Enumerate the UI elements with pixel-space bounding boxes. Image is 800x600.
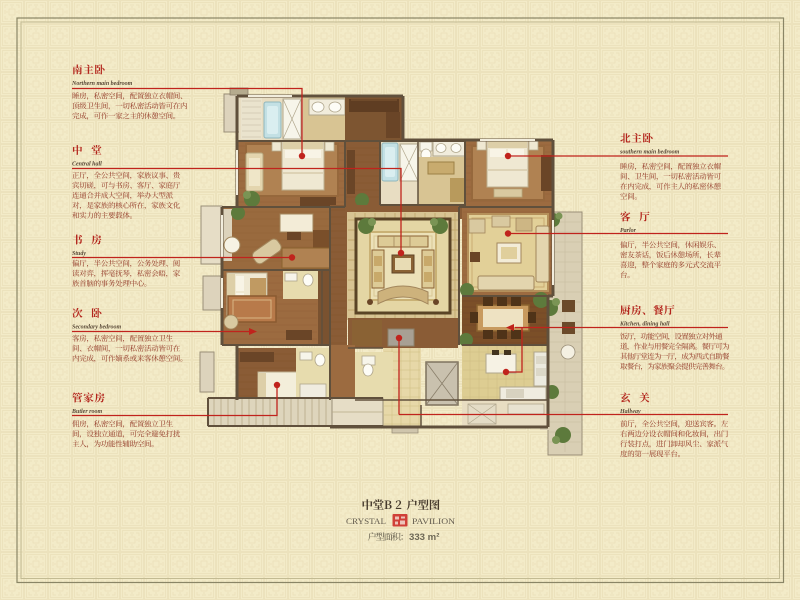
svg-text:Parlor: Parlor bbox=[620, 228, 637, 234]
svg-text:Northern main bedroom: Northern main bedroom bbox=[71, 81, 133, 87]
svg-text:southern main bedroom: southern main bedroom bbox=[619, 150, 680, 156]
svg-text:CRYSTAL: CRYSTAL bbox=[346, 517, 386, 526]
svg-text:Hallway: Hallway bbox=[619, 409, 641, 415]
svg-text:333 m²: 333 m² bbox=[409, 532, 439, 543]
svg-text:Butler room: Butler room bbox=[71, 409, 103, 415]
svg-text:Kitchen, dining hall: Kitchen, dining hall bbox=[619, 322, 670, 328]
svg-text:PAVILION: PAVILION bbox=[412, 517, 455, 526]
svg-text:Study: Study bbox=[72, 251, 86, 257]
svg-text:Central hall: Central hall bbox=[72, 162, 102, 168]
svg-text:Secondary bedroom: Secondary bedroom bbox=[72, 325, 121, 331]
